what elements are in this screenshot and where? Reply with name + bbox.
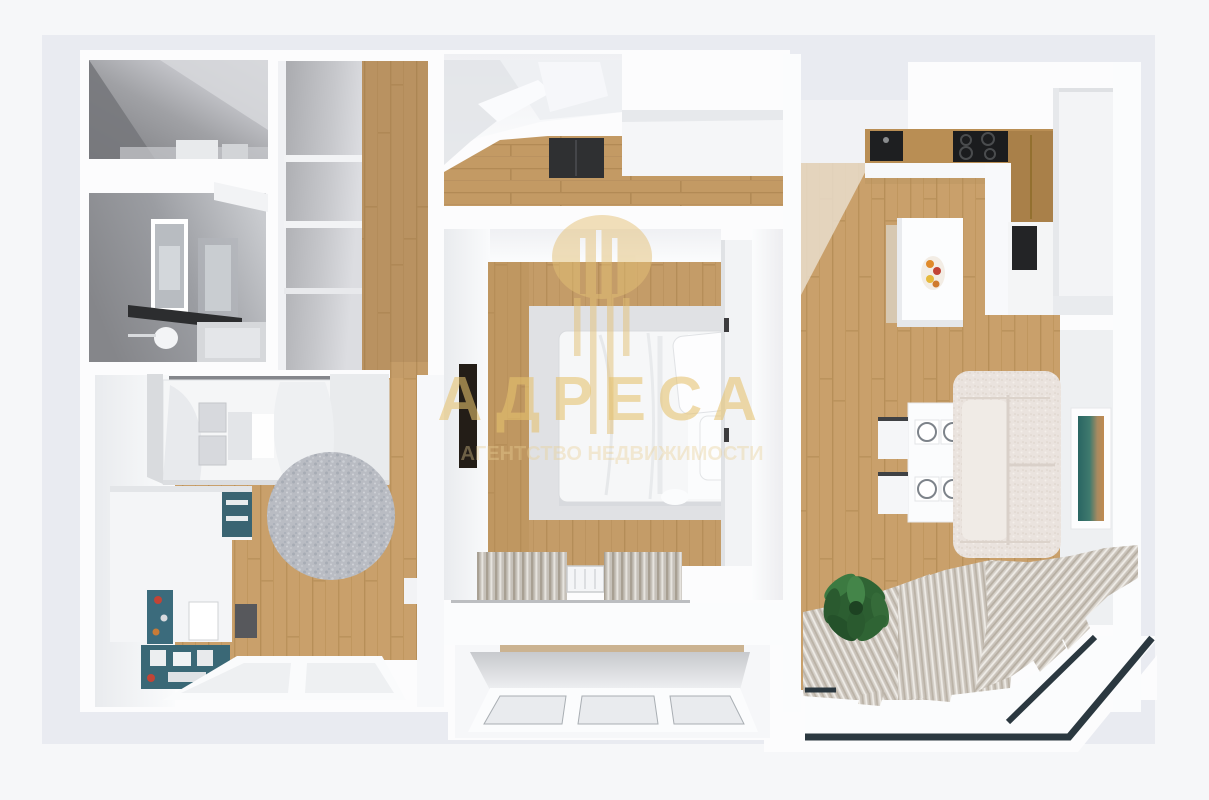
svg-text:АДРЕСА: АДРЕСА bbox=[438, 365, 769, 434]
svg-text:АГЕНТСТВО НЕДВИЖИМОСТИ: АГЕНТСТВО НЕДВИЖИМОСТИ bbox=[460, 443, 763, 465]
